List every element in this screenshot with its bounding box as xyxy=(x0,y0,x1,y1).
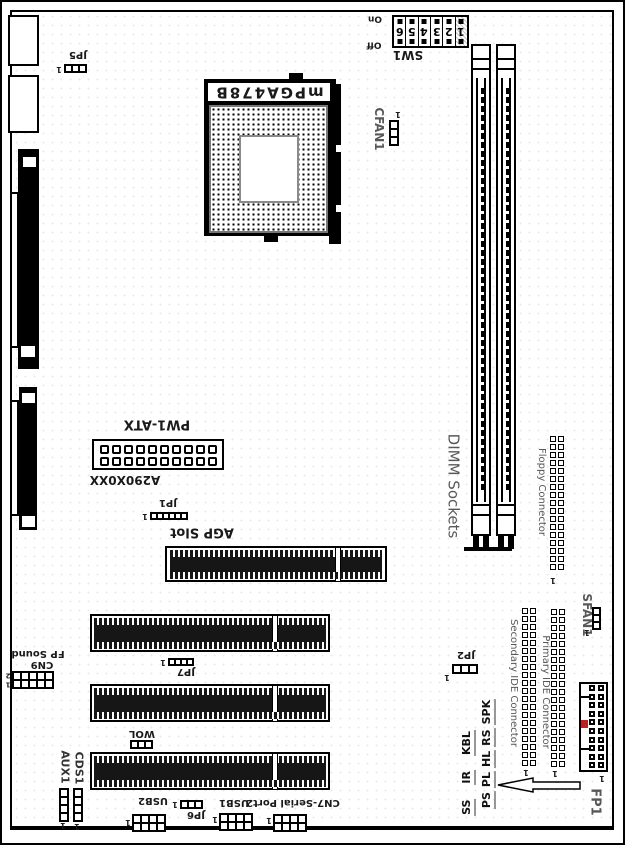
pin xyxy=(14,673,20,679)
pin xyxy=(551,617,557,623)
pin xyxy=(550,508,556,514)
pin xyxy=(589,702,595,708)
pci-slot-3 xyxy=(94,756,326,787)
pin xyxy=(150,824,156,830)
pin xyxy=(550,444,556,450)
pin xyxy=(558,524,564,530)
cn7-serial-header xyxy=(273,814,307,832)
pin xyxy=(559,713,565,719)
cn9-label: CN9 xyxy=(31,659,54,669)
floppy-connector-pins xyxy=(550,436,564,570)
pin xyxy=(136,445,145,454)
pin xyxy=(75,790,81,796)
jp2-jumper xyxy=(452,664,478,674)
pin xyxy=(164,514,168,518)
jp1-label: JP1 xyxy=(159,497,177,507)
dimm-socket-2 xyxy=(496,44,516,536)
sw1-label: SW1 xyxy=(393,49,423,61)
pin xyxy=(112,457,121,466)
jp5-jumper xyxy=(64,64,87,73)
pin xyxy=(299,816,305,822)
pin xyxy=(530,624,536,630)
floppy-pin1: 1 xyxy=(550,576,556,584)
cn9-pin2: 2 xyxy=(6,672,11,679)
pin xyxy=(559,689,565,695)
motherboard-layout-diagram: JP5 1 6 5 4 3 2 1 On Off SW1 mPGA478B CF… xyxy=(0,0,625,845)
pin xyxy=(530,616,536,622)
pin xyxy=(559,633,565,639)
pin xyxy=(150,816,156,822)
pin xyxy=(142,824,148,830)
pci-slot-1 xyxy=(94,618,326,649)
pin xyxy=(152,514,156,518)
pin xyxy=(550,436,556,442)
pin xyxy=(551,697,557,703)
pin xyxy=(558,500,564,506)
pin xyxy=(598,694,604,700)
pin xyxy=(75,798,81,804)
atx-part-number: A290X0XX xyxy=(90,474,160,486)
pin xyxy=(182,514,186,518)
pin xyxy=(100,445,109,454)
dimm-socket-1 xyxy=(471,44,491,536)
cn9-header xyxy=(12,671,54,689)
cpu-lever-bar xyxy=(329,84,341,244)
dimm-cap-line xyxy=(473,58,489,60)
sw1-cell-4: 4 xyxy=(418,17,430,46)
fp1-label-ps: PS xyxy=(480,791,496,809)
pin xyxy=(559,609,565,615)
pin xyxy=(182,660,186,664)
pin xyxy=(559,665,565,671)
pin xyxy=(530,664,536,670)
pin xyxy=(221,823,227,829)
pin xyxy=(522,656,528,662)
sw1-cell-2: 2 xyxy=(442,17,454,46)
pci2-key xyxy=(272,686,278,721)
jp6-jumper xyxy=(180,800,203,809)
pin xyxy=(530,640,536,646)
lever-notch xyxy=(336,145,341,152)
pin xyxy=(550,500,556,506)
pin xyxy=(61,806,67,812)
pin xyxy=(522,616,528,622)
pin xyxy=(559,737,565,743)
pin xyxy=(530,608,536,614)
usb2-label: USB2 xyxy=(138,795,168,805)
sw1-cell-3: 3 xyxy=(430,17,442,46)
fp-sound-label: FP Sound xyxy=(11,648,64,658)
primary-ide-pins xyxy=(551,609,565,767)
pin xyxy=(136,457,145,466)
fp1-label-pl: PL xyxy=(480,771,496,788)
pin xyxy=(176,514,180,518)
fp1-label: FP1 xyxy=(589,788,602,815)
dimm-contacts xyxy=(506,88,509,490)
pin xyxy=(158,514,162,518)
pin xyxy=(589,762,595,768)
rear-port-ps2-lower xyxy=(8,75,39,133)
cpu-center-cavity xyxy=(239,135,299,203)
fp1-callout-arrow xyxy=(496,775,582,795)
pin xyxy=(196,445,205,454)
pin xyxy=(550,548,556,554)
dimm-cap-line xyxy=(498,58,514,60)
pin xyxy=(551,633,557,639)
pin xyxy=(522,744,528,750)
pin xyxy=(170,514,174,518)
pin xyxy=(522,752,528,758)
sfan1-pin1: 1 xyxy=(584,628,590,636)
pin xyxy=(22,681,28,687)
pin xyxy=(38,681,44,687)
rear-port-stack-b xyxy=(19,387,37,530)
pin xyxy=(134,816,140,822)
usb2-header xyxy=(132,814,166,832)
cfan1-pin1: 1 xyxy=(395,110,401,118)
pin xyxy=(598,745,604,751)
pin xyxy=(160,457,169,466)
pin xyxy=(522,728,528,734)
pin xyxy=(454,666,460,672)
pin xyxy=(598,685,604,691)
sw1-cell-5: 5 xyxy=(405,17,417,46)
pin xyxy=(550,460,556,466)
pin xyxy=(558,492,564,498)
fp1-labels-row1: SS IR KBL xyxy=(460,730,476,816)
pw1-atx-label: PW1-ATX xyxy=(124,418,190,431)
fp1-divider xyxy=(581,748,589,750)
usb1-label: USB1 xyxy=(219,797,249,807)
pin xyxy=(132,742,137,747)
pin xyxy=(112,445,121,454)
pin xyxy=(550,532,556,538)
pin xyxy=(598,702,604,708)
pin xyxy=(38,673,44,679)
pin xyxy=(558,476,564,482)
pin xyxy=(551,649,557,655)
pin xyxy=(522,720,528,726)
pin xyxy=(558,564,564,570)
usb2-pin1: 1 xyxy=(125,818,131,826)
pin xyxy=(559,761,565,767)
pin xyxy=(522,736,528,742)
pin xyxy=(208,457,217,466)
pin xyxy=(558,532,564,538)
pin xyxy=(589,737,595,743)
pin xyxy=(559,729,565,735)
pin xyxy=(229,823,235,829)
cpu-socket-label: mPGA478B xyxy=(214,85,323,100)
pin xyxy=(530,672,536,678)
pin xyxy=(530,688,536,694)
pin xyxy=(550,484,556,490)
pin xyxy=(558,540,564,546)
dimm-sockets-label: DIMM Sockets xyxy=(446,434,461,539)
pin xyxy=(522,648,528,654)
fp1-divider xyxy=(581,696,589,698)
jp5-pin1: 1 xyxy=(56,65,62,73)
rear-port-shroud-b xyxy=(10,400,19,516)
pin xyxy=(470,666,476,672)
pin xyxy=(275,816,281,822)
fp1-pins xyxy=(589,685,604,768)
pin xyxy=(172,445,181,454)
pci3-key xyxy=(272,754,278,789)
pin xyxy=(558,508,564,514)
pin xyxy=(530,736,536,742)
pin xyxy=(196,457,205,466)
pin xyxy=(589,685,595,691)
pci1-key xyxy=(272,616,278,651)
secondary-ide-label: Secondary IDE Connector xyxy=(508,619,518,747)
pin xyxy=(158,824,164,830)
cpu-tab-top xyxy=(289,73,303,80)
pin xyxy=(594,609,599,614)
fp1-label-kbl: KBL xyxy=(460,730,476,756)
jp2-label: JP2 xyxy=(457,649,475,659)
pin xyxy=(148,457,157,466)
sw1-dip-switch: 6 5 4 3 2 1 xyxy=(392,15,469,48)
pin xyxy=(522,696,528,702)
pin xyxy=(551,665,557,671)
cds1-label: CDS1 xyxy=(74,752,85,785)
pin xyxy=(158,816,164,822)
pin xyxy=(558,516,564,522)
sfan1-connector xyxy=(592,607,601,630)
jp2-pin1: 1 xyxy=(444,673,450,681)
pin xyxy=(589,711,595,717)
pin xyxy=(598,728,604,734)
dimm-cap-line xyxy=(473,514,489,516)
pin xyxy=(80,66,85,71)
jp5-label: JP5 xyxy=(69,49,87,59)
pin xyxy=(551,689,557,695)
pin xyxy=(551,721,557,727)
pin xyxy=(291,816,297,822)
pin xyxy=(589,745,595,751)
pin xyxy=(522,664,528,670)
pin xyxy=(124,445,133,454)
sw1-off-label: Off xyxy=(367,40,382,49)
cds1-connector xyxy=(73,788,83,822)
pin xyxy=(530,720,536,726)
floppy-connector-label: Floppy Connector xyxy=(536,448,546,536)
pin xyxy=(196,802,201,807)
pin xyxy=(184,445,193,454)
pin xyxy=(558,444,564,450)
pin xyxy=(75,806,81,812)
pin xyxy=(559,697,565,703)
pin xyxy=(46,673,52,679)
primary-ide-label: Primary IDE Connector xyxy=(540,635,550,749)
jp7-jumper xyxy=(168,658,194,666)
pin xyxy=(551,753,557,759)
pin xyxy=(391,138,397,144)
pin xyxy=(530,744,536,750)
pin xyxy=(589,694,595,700)
pin xyxy=(594,623,599,628)
pin xyxy=(522,760,528,766)
pin xyxy=(134,824,140,830)
pin xyxy=(551,681,557,687)
pin xyxy=(522,632,528,638)
pin xyxy=(559,705,565,711)
pin xyxy=(530,752,536,758)
secondary-ide-pins xyxy=(522,608,536,766)
pin xyxy=(61,790,67,796)
pin xyxy=(550,540,556,546)
jp6-label: JP6 xyxy=(187,809,205,819)
pin xyxy=(551,729,557,735)
pin xyxy=(530,704,536,710)
pin xyxy=(100,457,109,466)
pin xyxy=(61,798,67,804)
jp6-pin1: 1 xyxy=(172,800,178,808)
dimm-rail xyxy=(509,78,511,502)
pin xyxy=(594,616,599,621)
pin xyxy=(559,745,565,751)
cn9-pin1: 1 xyxy=(6,681,11,688)
pin xyxy=(551,609,557,615)
fp1-label-ss: SS xyxy=(460,799,476,816)
pin xyxy=(148,445,157,454)
pin xyxy=(530,680,536,686)
fp1-label-spk: SPK xyxy=(480,699,496,726)
pin xyxy=(551,713,557,719)
pin xyxy=(559,625,565,631)
pin xyxy=(550,468,556,474)
pin xyxy=(22,673,28,679)
dimm-rail xyxy=(484,78,486,502)
pin xyxy=(522,640,528,646)
pin xyxy=(598,754,604,760)
pin xyxy=(589,728,595,734)
pin xyxy=(170,660,174,664)
pin xyxy=(530,656,536,662)
pin xyxy=(75,814,81,820)
pin xyxy=(291,824,297,830)
wol-label: WOL xyxy=(129,728,155,738)
usb1-header xyxy=(219,813,253,831)
pin xyxy=(172,457,181,466)
pin xyxy=(530,728,536,734)
rear-port-shroud-a xyxy=(10,192,19,348)
port-notch xyxy=(21,346,35,357)
jp1-pin1: 1 xyxy=(142,512,148,520)
fp1-key-mark xyxy=(581,720,588,728)
pin xyxy=(184,457,193,466)
pin xyxy=(550,476,556,482)
pin xyxy=(558,436,564,442)
pin xyxy=(550,564,556,570)
aux1-pin1: 1 xyxy=(60,821,66,829)
pin xyxy=(522,608,528,614)
pin xyxy=(550,492,556,498)
pin xyxy=(559,721,565,727)
pin xyxy=(299,824,305,830)
pin xyxy=(530,696,536,702)
sw1-cell-1: 1 xyxy=(455,17,467,46)
pin xyxy=(522,624,528,630)
pin xyxy=(46,681,52,687)
pin xyxy=(221,815,227,821)
pin xyxy=(283,824,289,830)
pin xyxy=(550,516,556,522)
aux1-connector xyxy=(59,788,69,822)
fp1-label-ir: IR xyxy=(460,770,476,785)
cfan1-label: CFAN1 xyxy=(373,107,385,150)
cds1-pin1: 1 xyxy=(74,822,80,830)
usb1-pin1: 1 xyxy=(212,815,218,823)
pin xyxy=(14,681,20,687)
pin xyxy=(73,66,78,71)
rear-port-ps2-upper xyxy=(8,15,39,66)
pin xyxy=(522,688,528,694)
pin xyxy=(551,761,557,767)
pin xyxy=(142,816,148,822)
pin xyxy=(558,452,564,458)
pin xyxy=(530,760,536,766)
pin xyxy=(139,742,144,747)
pin xyxy=(558,548,564,554)
cpu-tab-bottom xyxy=(264,235,278,242)
pin xyxy=(522,672,528,678)
cfan1-connector xyxy=(389,120,399,146)
pin xyxy=(559,617,565,623)
pin xyxy=(30,681,36,687)
pin xyxy=(245,815,251,821)
agp-slot-label: AGP Slot xyxy=(170,526,234,539)
pin xyxy=(530,648,536,654)
pin xyxy=(229,815,235,821)
pin xyxy=(558,484,564,490)
pin xyxy=(559,649,565,655)
pin xyxy=(66,66,71,71)
pin xyxy=(530,712,536,718)
pin xyxy=(559,753,565,759)
jp1-jumper xyxy=(150,512,188,520)
lever-notch xyxy=(336,205,341,212)
pin xyxy=(160,445,169,454)
dimm-contacts xyxy=(481,88,484,490)
pin xyxy=(237,815,243,821)
atx-power-connector xyxy=(92,439,224,470)
pin xyxy=(551,705,557,711)
pin xyxy=(558,468,564,474)
pin xyxy=(462,666,468,672)
rear-port-stack-a xyxy=(18,149,39,369)
pin xyxy=(275,824,281,830)
pin xyxy=(559,641,565,647)
pin xyxy=(522,704,528,710)
pin xyxy=(551,641,557,647)
sw1-on-label: On xyxy=(368,14,382,23)
pin xyxy=(551,737,557,743)
dimm-rail xyxy=(501,78,503,502)
port-notch xyxy=(22,393,35,403)
pin xyxy=(188,660,192,664)
pin xyxy=(550,452,556,458)
pin xyxy=(558,556,564,562)
pin xyxy=(550,556,556,562)
pin xyxy=(598,737,604,743)
dimm-foot-bar xyxy=(464,547,512,551)
pin xyxy=(522,712,528,718)
pin xyxy=(146,742,151,747)
pin xyxy=(391,122,397,128)
pin xyxy=(589,754,595,760)
